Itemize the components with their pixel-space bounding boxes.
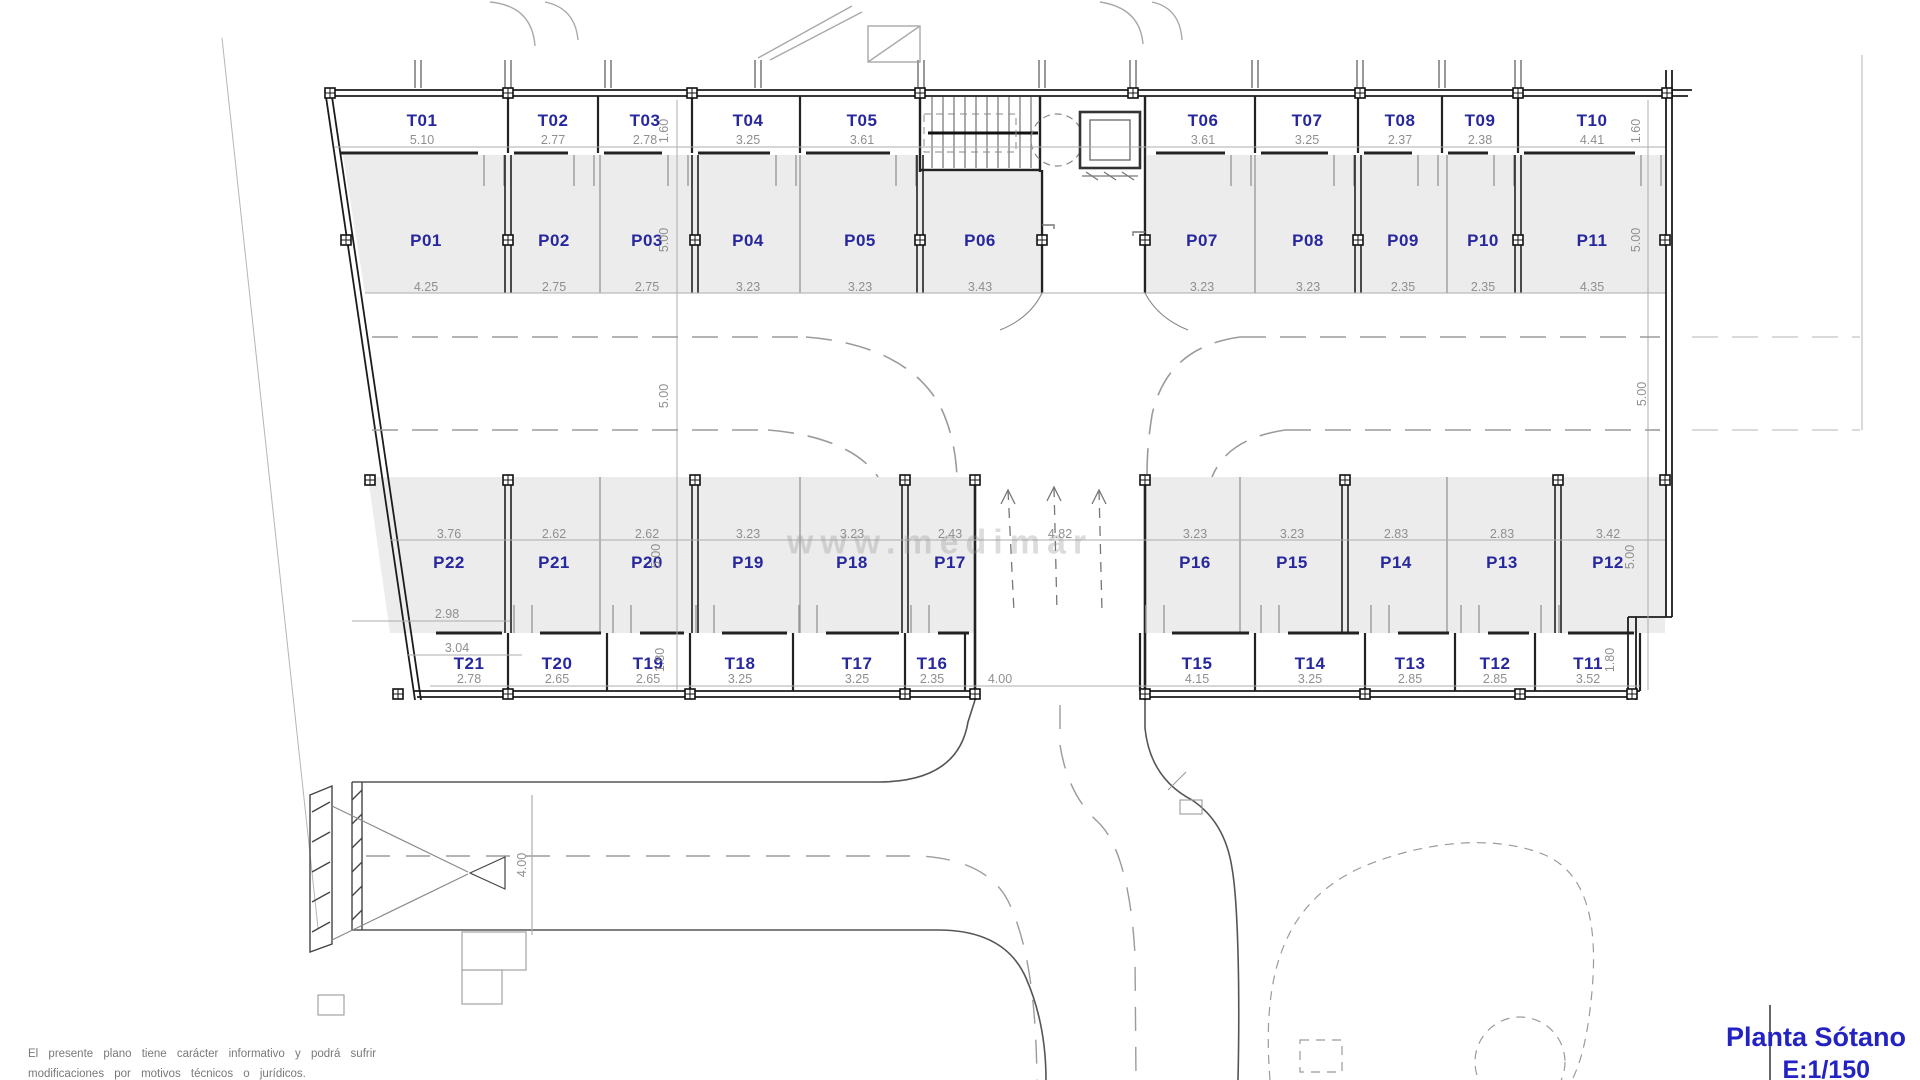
parking-label: P13 xyxy=(1486,553,1518,573)
parking-label: P12 xyxy=(1592,553,1624,573)
storage-label: T15 xyxy=(1182,654,1213,674)
parking-label: P09 xyxy=(1387,231,1419,251)
parking-dim: 3.42 xyxy=(1596,527,1620,541)
elevator-vent xyxy=(1082,172,1138,180)
storage-label: T04 xyxy=(733,111,764,131)
storage-dim: 3.25 xyxy=(1295,133,1319,147)
corridor-fillet-curves xyxy=(1000,293,1188,330)
sub-dim: 3.04 xyxy=(445,641,469,655)
parking-dim: 3.23 xyxy=(1280,527,1304,541)
parking-label: P01 xyxy=(410,231,442,251)
storage-dim: 3.25 xyxy=(728,672,752,686)
parking-label: P19 xyxy=(732,553,764,573)
parking-label: P10 xyxy=(1467,231,1499,251)
storage-label: T09 xyxy=(1465,111,1496,131)
watermark-text: www.medimar xyxy=(787,524,1093,563)
storage-dim: 3.25 xyxy=(1298,672,1322,686)
storage-dim: 4.15 xyxy=(1185,672,1209,686)
storage-dim: 2.77 xyxy=(541,133,565,147)
parking-dim: 2.62 xyxy=(635,527,659,541)
parking-dim: 3.23 xyxy=(1296,280,1320,294)
parking-label: P22 xyxy=(433,553,465,573)
storage-label: T10 xyxy=(1577,111,1608,131)
depth-dim: 1.80 xyxy=(653,648,667,672)
storage-dim: 2.38 xyxy=(1468,133,1492,147)
parking-label: P05 xyxy=(844,231,876,251)
wall-stubs-top xyxy=(415,60,1521,88)
depth-dim: 1.80 xyxy=(1603,648,1617,672)
landscape-dashed-outlines xyxy=(1268,843,1593,1080)
plan-title: Planta Sótano xyxy=(1726,1022,1906,1053)
storage-dim: 3.61 xyxy=(1191,133,1215,147)
parking-label: P21 xyxy=(538,553,570,573)
parking-label: P04 xyxy=(732,231,764,251)
depth-dim: 1.60 xyxy=(1629,119,1643,143)
parking-dim: 3.43 xyxy=(968,280,992,294)
road-center-dashed xyxy=(366,705,1136,1080)
storage-dim: 5.10 xyxy=(410,133,434,147)
ramp-bottom-dim: 4.00 xyxy=(988,672,1012,686)
landscape-details xyxy=(1168,772,1202,814)
upper-floor-hint-lines xyxy=(490,2,1182,62)
parking-dim: 3.23 xyxy=(1183,527,1207,541)
storage-label: T08 xyxy=(1385,111,1416,131)
depth-dim: 5.00 xyxy=(1623,545,1637,569)
storage-label: T14 xyxy=(1295,654,1326,674)
disclaimer-line1: El presente plano tiene carácter informa… xyxy=(28,1048,376,1060)
storage-label: T02 xyxy=(538,111,569,131)
storage-label: T21 xyxy=(454,654,485,674)
depth-dim: 5.00 xyxy=(657,228,671,252)
storage-dim: 3.25 xyxy=(736,133,760,147)
storage-label: T11 xyxy=(1573,654,1603,674)
road-width-dim: 4.00 xyxy=(515,853,529,877)
road-side-structures xyxy=(318,932,526,1015)
parking-dim: 4.35 xyxy=(1580,280,1604,294)
storage-dim: 2.78 xyxy=(633,133,657,147)
parking-dim: 4.25 xyxy=(414,280,438,294)
driving-lane-dashed-lines xyxy=(372,337,1660,477)
storage-dim: 3.61 xyxy=(850,133,874,147)
ramp-corridor-walls xyxy=(975,477,1145,700)
depth-dim: 1.60 xyxy=(657,119,671,143)
depth-dim: 5.00 xyxy=(1635,382,1649,406)
storage-label: T16 xyxy=(917,654,948,674)
storage-label: T13 xyxy=(1395,654,1426,674)
parking-label: P14 xyxy=(1380,553,1412,573)
plan-scale: E:1/150 xyxy=(1782,1056,1870,1080)
storage-dim: 2.37 xyxy=(1388,133,1412,147)
storage-dim: 2.65 xyxy=(545,672,569,686)
parking-label: P15 xyxy=(1276,553,1308,573)
depth-dim: 5.00 xyxy=(657,384,671,408)
storage-label: T18 xyxy=(725,654,756,674)
storage-dim: 2.35 xyxy=(920,672,944,686)
sub-dim: 2.98 xyxy=(435,607,459,621)
storage-dim: 3.52 xyxy=(1576,672,1600,686)
depth-dim: 5.00 xyxy=(1629,228,1643,252)
parking-dim: 3.23 xyxy=(848,280,872,294)
storage-label: T06 xyxy=(1188,111,1219,131)
storage-label: T05 xyxy=(847,111,878,131)
storage-dim: 3.25 xyxy=(845,672,869,686)
parking-dim: 3.76 xyxy=(437,527,461,541)
storage-dim: 2.78 xyxy=(457,672,481,686)
floor-plan-canvas: T01 5.10 T02 2.77 T03 2.78 T04 3.25 T05 … xyxy=(0,0,1920,1080)
depth-dim: 5.00 xyxy=(649,544,663,568)
corridor-door-stubs xyxy=(1042,225,1145,236)
parking-dim: 3.23 xyxy=(736,280,760,294)
parking-label: P07 xyxy=(1186,231,1218,251)
storage-dim: 2.65 xyxy=(636,672,660,686)
parking-label: P06 xyxy=(964,231,996,251)
parking-label: P11 xyxy=(1577,231,1608,251)
parking-dim: 2.75 xyxy=(635,280,659,294)
storage-label: T03 xyxy=(630,111,661,131)
parking-dim: 3.23 xyxy=(1190,280,1214,294)
disclaimer-line2: modificaciones por motivos técnicos o ju… xyxy=(28,1068,306,1080)
storage-bottom-partitions xyxy=(508,633,1640,691)
parking-dim: 2.62 xyxy=(542,527,566,541)
storage-label: T07 xyxy=(1292,111,1323,131)
parking-label: P08 xyxy=(1292,231,1324,251)
parking-dim: 2.35 xyxy=(1471,280,1495,294)
road-edges xyxy=(352,700,1239,1080)
storage-label: T20 xyxy=(542,654,573,674)
parking-label: P02 xyxy=(538,231,570,251)
parking-dim: 2.83 xyxy=(1384,527,1408,541)
parking-dim: 3.23 xyxy=(736,527,760,541)
storage-label: T17 xyxy=(842,654,873,674)
parking-dim: 2.75 xyxy=(542,280,566,294)
parking-dim: 2.83 xyxy=(1490,527,1514,541)
storage-label: T01 xyxy=(407,111,438,131)
parking-label: P16 xyxy=(1179,553,1211,573)
storage-dim: 4.41 xyxy=(1580,133,1604,147)
parking-dim: 2.35 xyxy=(1391,280,1415,294)
storage-label: T12 xyxy=(1480,654,1511,674)
storage-dim: 2.85 xyxy=(1483,672,1507,686)
storage-dim: 2.85 xyxy=(1398,672,1422,686)
